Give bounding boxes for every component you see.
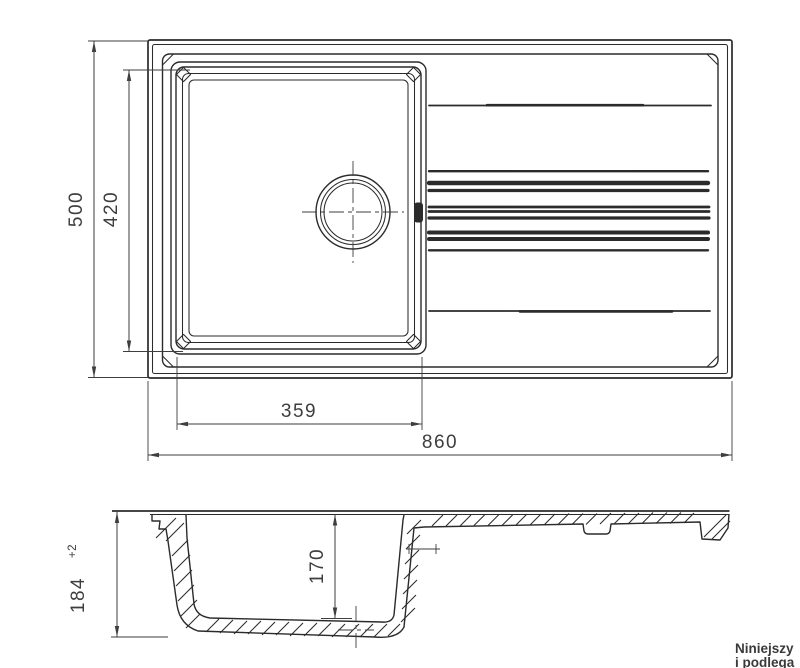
dim-label-860: 860: [422, 432, 458, 453]
dim-overall-width: 860: [148, 381, 732, 461]
bowl: [171, 62, 426, 354]
note-line-2: i podlega: [735, 655, 795, 668]
drainboard-grooves: [414, 105, 711, 311]
dim-bowl-inner-width: 359: [177, 357, 422, 430]
dim-bowl-depth: 170: [307, 515, 352, 619]
section-bowl-inner-profile: [186, 515, 404, 622]
bowl-rim-line-2: [176, 67, 421, 349]
dim-label-184-tolerance: +2: [67, 544, 79, 558]
groove-bowl-notch: [414, 203, 423, 223]
dim-overall-height: 184 +2: [67, 512, 168, 637]
dim-label-359: 359: [281, 401, 317, 422]
bowl-rim-line-3: [183, 74, 415, 343]
section-view: [112, 511, 730, 652]
sink-technical-drawing: 500 420 359 860: [0, 0, 800, 668]
drawing-note: Niniejszy i podlega: [735, 641, 795, 668]
sink-outer-edge: [148, 40, 732, 378]
dim-label-500: 500: [66, 191, 87, 227]
plan-view: [148, 40, 732, 378]
drawing-canvas: 500 420 359 860: [0, 0, 800, 668]
bowl-rim-outer: [171, 62, 426, 354]
dim-label-170: 170: [307, 548, 328, 584]
drain-hole: [302, 161, 404, 263]
hatch-right-wall: [401, 520, 421, 622]
dim-label-420: 420: [101, 191, 122, 227]
sink-outer-edge-inner-line: [153, 45, 728, 374]
note-line-1: Niniejszy: [735, 641, 794, 656]
bowl-inner-edge: [189, 80, 408, 336]
dim-420-extension-lines: [123, 70, 190, 352]
dim-label-184: 184: [68, 577, 89, 613]
